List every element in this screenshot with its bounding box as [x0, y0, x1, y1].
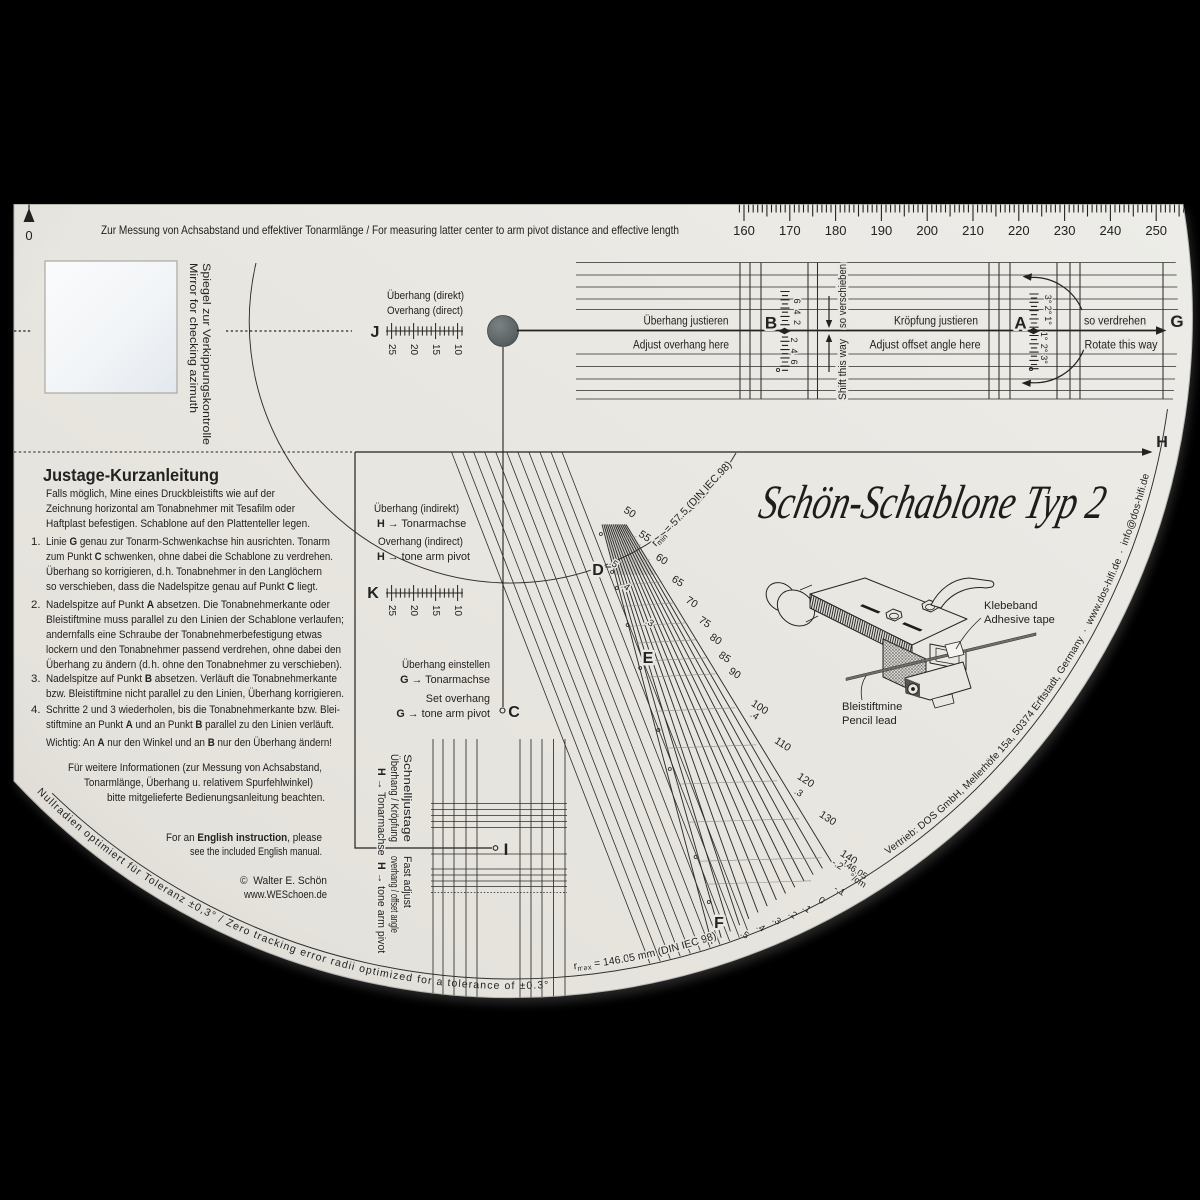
svg-text:3°: 3° [1039, 355, 1049, 364]
svg-text:G: G [1170, 312, 1183, 331]
svg-text:G → tone arm pivot: G → tone arm pivot [396, 708, 490, 720]
svg-text:Mirror for checking azimuth: Mirror for checking azimuth [187, 263, 199, 413]
svg-text:Rotate this way: Rotate this way [1085, 338, 1159, 352]
svg-text:25: 25 [386, 344, 397, 356]
svg-text:lockern und den Tonabnehmer pa: lockern und den Tonabnehmer passend verd… [46, 644, 341, 656]
svg-text:20: 20 [408, 344, 419, 356]
svg-text:H → tone arm pivot: H → tone arm pivot [377, 551, 470, 563]
svg-text:15: 15 [430, 605, 441, 617]
svg-text:H → Tonarmachse: H → Tonarmachse [375, 768, 387, 856]
svg-text:20: 20 [408, 605, 419, 617]
svg-text:Adjust offset angle here: Adjust offset angle here [870, 338, 981, 352]
svg-text:D: D [592, 562, 604, 579]
svg-text:Nadelspitze auf Punkt A absetz: Nadelspitze auf Punkt A absetzen. Die To… [46, 599, 330, 611]
svg-text:180: 180 [825, 223, 847, 238]
svg-text:Klebeband: Klebeband [984, 600, 1038, 612]
svg-text:bzw. Bleistiftmine nicht paral: bzw. Bleistiftmine nicht parallel zu den… [46, 688, 344, 700]
svg-text:Bleistiftmine: Bleistiftmine [842, 701, 902, 713]
svg-text:Zur Messung von Achsabstand un: Zur Messung von Achsabstand und effektiv… [101, 224, 679, 237]
svg-text:6: 6 [789, 359, 799, 364]
svg-text:Haftplast befestigen. Schablon: Haftplast befestigen. Schablone auf den … [46, 518, 310, 530]
svg-text:Kröpfung justieren: Kröpfung justieren [894, 314, 978, 328]
svg-text:10: 10 [452, 344, 463, 356]
svg-text:E: E [643, 650, 654, 667]
svg-text:1°: 1° [1039, 332, 1049, 341]
svg-text:bitte mitgelieferte Bedienungs: bitte mitgelieferte Bedienungsanleitung … [107, 792, 325, 804]
svg-text:Zeichnung horizontal am Tonabn: Zeichnung horizontal am Tonabnehmer mit … [46, 503, 295, 515]
svg-text:overhang / offset angle: overhang / offset angle [388, 856, 400, 933]
svg-text:2°: 2° [1039, 344, 1049, 353]
svg-text:Nadelspitze auf Punkt B absetz: Nadelspitze auf Punkt B absetzen. Verläu… [46, 673, 337, 685]
svg-text:so verdrehen: so verdrehen [1084, 314, 1146, 328]
svg-text:Adjust overhang here: Adjust overhang here [633, 338, 729, 352]
svg-text:F: F [714, 915, 724, 932]
svg-text:Bleistiftmine muss parallel zu: Bleistiftmine muss parallel zu den Linie… [46, 614, 344, 626]
svg-text:Set overhang: Set overhang [426, 693, 490, 705]
svg-text:Überhang (direkt): Überhang (direkt) [387, 290, 464, 302]
svg-text:andernfalls eine Schraube der: andernfalls eine Schraube der Tonabnehme… [46, 629, 322, 641]
svg-text:Überhang (indirekt): Überhang (indirekt) [374, 503, 459, 515]
svg-text:B: B [765, 314, 777, 333]
svg-text:Pencil lead: Pencil lead [842, 715, 897, 727]
svg-text:1.: 1. [31, 536, 41, 548]
svg-text:190: 190 [871, 223, 893, 238]
svg-text:H → tone arm pivot: H → tone arm pivot [375, 862, 387, 953]
svg-text:Tonarmlänge, Überhang u. relat: Tonarmlänge, Überhang u. relativem Spurf… [84, 777, 313, 789]
svg-text:4: 4 [792, 309, 802, 314]
svg-text:so verschieben: so verschieben [837, 264, 849, 328]
svg-text:J: J [371, 324, 380, 341]
svg-text:2°: 2° [1043, 306, 1053, 315]
svg-text:230: 230 [1054, 223, 1076, 238]
svg-text:H → Tonarmachse: H → Tonarmachse [377, 518, 466, 530]
svg-text:Linie G genau zur Tonarm-Schwe: Linie G genau zur Tonarm-Schwenkachse hi… [46, 536, 330, 548]
svg-text:0: 0 [25, 228, 32, 243]
svg-text:www.WESchoen.de: www.WESchoen.de [243, 889, 327, 901]
svg-text:10: 10 [452, 605, 463, 617]
svg-text:Schnelljustage: Schnelljustage [401, 754, 413, 842]
svg-text:so verschieben, dass die Nadel: so verschieben, dass die Nadelspitze gen… [46, 581, 318, 593]
svg-text:Überhang / Kröpfung: Überhang / Kröpfung [388, 754, 400, 842]
svg-text:250: 250 [1145, 223, 1167, 238]
svg-text:For an English instruction, pl: For an English instruction, please [166, 832, 322, 844]
svg-text:zum Punkt C schwenken, ohne da: zum Punkt C schwenken, ohne dabei die Sc… [46, 551, 333, 563]
svg-text:170: 170 [779, 223, 801, 238]
svg-text:Überhang einstellen: Überhang einstellen [402, 659, 490, 671]
svg-text:Overhang (indirect): Overhang (indirect) [378, 536, 463, 548]
svg-text:220: 220 [1008, 223, 1030, 238]
svg-text:240: 240 [1100, 223, 1122, 238]
svg-text:Shift this way: Shift this way [837, 339, 849, 400]
svg-text:Schritte 2 und 3 wiederholen,: Schritte 2 und 3 wiederholen, bis die To… [46, 704, 340, 716]
svg-text:Überhang justieren: Überhang justieren [644, 314, 729, 328]
svg-text:4.: 4. [31, 704, 41, 716]
svg-text:Falls möglich, Mine eines Druc: Falls möglich, Mine eines Druckbleistift… [46, 488, 275, 500]
svg-text:2: 2 [792, 320, 802, 325]
svg-text:Justage-Kurzanleitung: Justage-Kurzanleitung [43, 465, 219, 485]
svg-text:3.: 3. [31, 673, 41, 685]
svg-text:3°: 3° [1043, 295, 1053, 304]
svg-text:4: 4 [789, 348, 799, 353]
svg-text:C: C [508, 704, 520, 721]
svg-text:Überhang zu ändern (d. h. ohne: Überhang zu ändern (d. h. ohne den Tonab… [46, 659, 342, 671]
svg-text:K: K [367, 585, 379, 602]
svg-text:Overhang (direct): Overhang (direct) [387, 305, 463, 317]
svg-text:Wichtig: An A nur den Winkel u: Wichtig: An A nur den Winkel und an B nu… [46, 737, 332, 749]
svg-text:2: 2 [789, 337, 799, 342]
svg-text:A: A [1014, 314, 1026, 333]
svg-text:Spiegel zur Verkippungskontrol: Spiegel zur Verkippungskontrolle [200, 263, 212, 445]
svg-text:© Walter E. Schön: © Walter E. Schön [240, 875, 327, 887]
svg-text:160: 160 [733, 223, 755, 238]
svg-text:200: 200 [916, 223, 938, 238]
svg-text:I: I [504, 840, 509, 859]
svg-text:Für weitere Informationen (zur: Für weitere Informationen (zur Messung v… [68, 762, 322, 774]
svg-text:210: 210 [962, 223, 984, 238]
svg-text:15: 15 [430, 344, 441, 356]
svg-text:Überhang so korrigieren, d. h.: Überhang so korrigieren, d. h. Tonabnehm… [46, 566, 322, 578]
svg-text:1°: 1° [1043, 316, 1053, 325]
svg-text:2.: 2. [31, 599, 41, 611]
svg-text:Schön-Schablone Typ 2: Schön-Schablone Typ 2 [755, 476, 1111, 528]
svg-text:Adhesive tape: Adhesive tape [984, 614, 1055, 626]
svg-text:see the included English manua: see the included English manual. [190, 846, 322, 858]
svg-text:Fast adjust: Fast adjust [401, 856, 413, 908]
svg-text:G → Tonarmachse: G → Tonarmachse [400, 674, 490, 686]
svg-text:6: 6 [792, 298, 802, 303]
svg-text:stiftmine an Punkt A und an Pu: stiftmine an Punkt A und an Punkt B para… [46, 719, 334, 731]
svg-text:25: 25 [386, 605, 397, 617]
